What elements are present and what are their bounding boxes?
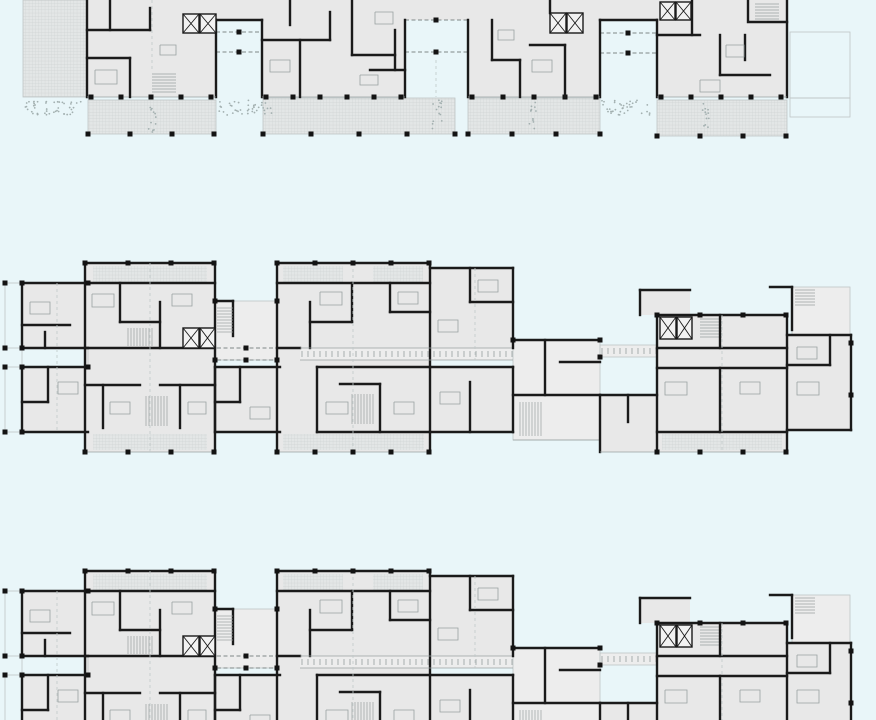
column — [83, 569, 88, 574]
column — [427, 450, 432, 455]
column — [126, 569, 131, 574]
gravel-dot — [618, 114, 620, 116]
column — [598, 663, 603, 668]
gravel-dot — [646, 104, 648, 106]
gravel-dot — [441, 100, 443, 102]
column — [389, 450, 394, 455]
gravel-dot — [440, 102, 442, 104]
gravel-dot — [607, 111, 609, 113]
room-fill — [600, 345, 657, 357]
column — [399, 95, 404, 100]
gravel-dot — [58, 101, 60, 103]
gravel-dot — [614, 109, 616, 111]
gravel-dot — [253, 106, 255, 108]
room-fill — [22, 591, 88, 656]
gravel-dot — [265, 102, 267, 104]
column — [698, 134, 703, 139]
column — [126, 261, 131, 266]
gravel-dot — [530, 109, 532, 111]
gravel-dot — [44, 112, 46, 114]
gravel-dot — [619, 111, 621, 113]
column — [86, 281, 91, 286]
gravel-dot — [262, 107, 264, 109]
gravel-dot — [229, 102, 231, 104]
room-fill — [277, 571, 430, 720]
column — [849, 393, 854, 398]
gravel-dot — [241, 113, 243, 115]
gravel-dot — [148, 128, 150, 130]
room-fill — [215, 301, 277, 360]
gravel-dot — [623, 105, 625, 107]
gravel-dot — [621, 108, 623, 110]
column — [405, 132, 410, 137]
gravel-dot — [264, 113, 266, 115]
column — [741, 134, 746, 139]
gravel-dot — [603, 101, 605, 103]
column — [275, 666, 280, 671]
gravel-dot — [254, 112, 256, 114]
column — [749, 95, 754, 100]
room-fill — [430, 367, 513, 432]
gravel-dot — [256, 110, 258, 112]
column — [3, 430, 8, 435]
gravel-dot — [535, 110, 537, 112]
gravel-dot — [80, 101, 82, 103]
gravel-dot — [704, 111, 706, 113]
gravel-dot — [610, 111, 612, 113]
hatched-paving — [263, 98, 455, 134]
gravel-dot — [271, 112, 273, 114]
gravel-dot — [46, 108, 48, 110]
column — [784, 621, 789, 626]
gravel-dot — [66, 114, 68, 116]
column — [213, 607, 218, 612]
hatched-paving — [93, 574, 207, 591]
column — [427, 569, 432, 574]
gravel-dot — [28, 101, 30, 103]
column — [784, 134, 789, 139]
gravel-dot — [534, 106, 536, 108]
gravel-dot — [247, 104, 249, 106]
gravel-dot — [702, 103, 704, 105]
column — [237, 50, 242, 55]
gravel-dot — [649, 114, 651, 116]
column — [501, 95, 506, 100]
column — [275, 569, 280, 574]
gravel-dot — [439, 114, 441, 116]
column — [741, 450, 746, 455]
column — [351, 261, 356, 266]
gravel-dot — [155, 123, 157, 125]
gravel-dot — [627, 110, 629, 112]
gravel-dot — [46, 114, 48, 116]
gravel-dot — [704, 124, 706, 126]
column — [20, 430, 25, 435]
gravel-dot — [26, 102, 28, 104]
column — [149, 95, 154, 100]
column — [698, 313, 703, 318]
gravel-dot — [601, 100, 603, 102]
column — [532, 95, 537, 100]
gravel-dot — [234, 101, 236, 103]
column — [598, 646, 603, 651]
gravel-dot — [706, 118, 708, 120]
column — [20, 673, 25, 678]
gravel-dot — [626, 106, 628, 108]
gravel-dot — [629, 104, 631, 106]
gravel-dot — [636, 99, 638, 101]
gravel-dot — [267, 108, 269, 110]
column — [511, 338, 516, 343]
gravel-dot — [254, 104, 256, 106]
column — [389, 261, 394, 266]
gravel-dot — [629, 106, 631, 108]
gravel-dot — [432, 120, 434, 122]
gravel-dot — [438, 106, 440, 108]
column — [655, 621, 660, 626]
column — [3, 281, 8, 286]
column — [784, 313, 789, 318]
column — [128, 132, 133, 137]
column — [309, 132, 314, 137]
gravel-dot — [632, 102, 634, 104]
gravel-dot — [533, 128, 535, 130]
room-fill — [600, 653, 657, 665]
gravel-dot — [270, 107, 272, 109]
room-fill — [787, 643, 851, 720]
column — [275, 450, 280, 455]
gravel-dot — [220, 106, 222, 108]
gravel-dot — [612, 110, 614, 112]
hatched-paving — [657, 100, 787, 136]
gravel-dot — [45, 101, 47, 103]
gravel-dot — [150, 122, 152, 124]
column — [261, 132, 266, 137]
gravel-dot — [707, 126, 709, 128]
column — [86, 132, 91, 137]
gravel-dot — [34, 107, 36, 109]
gravel-dot — [234, 109, 236, 111]
column — [466, 132, 471, 137]
gravel-dot — [151, 131, 153, 133]
column — [179, 95, 184, 100]
gravel-dot — [631, 106, 633, 108]
column — [779, 95, 784, 100]
room-fill — [640, 290, 690, 315]
column — [626, 31, 631, 36]
room-fill — [792, 287, 850, 335]
gravel-dot — [219, 101, 221, 103]
gravel-dot — [646, 111, 648, 113]
column — [3, 365, 8, 370]
gravel-dot — [251, 111, 253, 113]
gravel-dot — [529, 123, 531, 125]
room-fill — [215, 675, 280, 720]
gravel-dot — [441, 120, 443, 122]
column — [626, 51, 631, 56]
room-fill — [640, 598, 690, 623]
gravel-dot — [432, 128, 434, 130]
gravel-dot — [534, 102, 536, 104]
column — [212, 569, 217, 574]
gravel-dot — [261, 102, 263, 104]
column — [357, 132, 362, 137]
column — [212, 450, 217, 455]
column — [741, 621, 746, 626]
room-fill — [792, 595, 850, 643]
ground-floor-plan — [23, 0, 850, 139]
gravel-dot — [230, 104, 232, 106]
gravel-dot — [63, 113, 65, 115]
gravel-dot — [57, 107, 59, 109]
column — [594, 95, 599, 100]
gravel-dot — [33, 103, 35, 105]
column — [849, 341, 854, 346]
room-fill — [430, 675, 513, 720]
room-fill — [405, 20, 468, 97]
column — [741, 313, 746, 318]
gravel-dot — [609, 108, 611, 110]
column — [689, 95, 694, 100]
gravel-dot — [440, 106, 442, 108]
column — [318, 95, 323, 100]
column — [213, 358, 218, 363]
gravel-dot — [149, 107, 151, 109]
hatched-paving — [373, 574, 423, 591]
column — [470, 95, 475, 100]
column — [598, 338, 603, 343]
column — [784, 450, 789, 455]
floor-plan-canvas — [0, 0, 876, 720]
column — [275, 299, 280, 304]
column — [86, 365, 91, 370]
column — [291, 95, 296, 100]
gravel-dot — [151, 108, 153, 110]
column — [264, 95, 269, 100]
gravel-dot — [70, 103, 72, 105]
column — [434, 18, 439, 23]
gravel-dot — [606, 108, 608, 110]
column — [244, 654, 249, 659]
gravel-dot — [70, 101, 72, 103]
gravel-dot — [37, 113, 39, 115]
gravel-dot — [707, 112, 709, 114]
gravel-dot — [48, 113, 50, 115]
hatched-paving — [283, 266, 343, 283]
column — [389, 569, 394, 574]
gravel-dot — [635, 101, 637, 103]
column — [698, 621, 703, 626]
column — [345, 95, 350, 100]
column — [212, 132, 217, 137]
column — [20, 346, 25, 351]
column — [511, 646, 516, 651]
column — [169, 261, 174, 266]
gravel-dot — [31, 111, 33, 113]
gravel-dot — [71, 109, 73, 111]
column — [655, 134, 660, 139]
column — [213, 666, 218, 671]
column — [719, 95, 724, 100]
gravel-dot — [705, 113, 707, 115]
gravel-dot — [247, 113, 249, 115]
room-fill — [215, 609, 277, 668]
column — [212, 261, 217, 266]
gravel-dot — [33, 101, 35, 103]
gravel-dot — [62, 101, 64, 103]
column — [372, 95, 377, 100]
column — [20, 281, 25, 286]
room-fill — [85, 263, 215, 452]
column — [20, 589, 25, 594]
column — [3, 673, 8, 678]
gravel-dot — [614, 102, 616, 104]
gravel-dot — [63, 103, 65, 105]
room-fill — [22, 367, 88, 432]
column — [3, 654, 8, 659]
gravel-dot — [248, 99, 250, 101]
column — [598, 132, 603, 137]
gravel-dot — [37, 101, 39, 103]
column — [244, 346, 249, 351]
gravel-dot — [226, 114, 228, 116]
hatched-paving — [88, 100, 216, 134]
column — [89, 95, 94, 100]
room-fill — [22, 283, 88, 348]
column — [351, 569, 356, 574]
gravel-dot — [26, 106, 28, 108]
gravel-dot — [702, 109, 704, 111]
gravel-dot — [76, 102, 78, 104]
column — [351, 450, 356, 455]
column — [427, 261, 432, 266]
room-fill — [430, 576, 513, 656]
column — [659, 95, 664, 100]
column — [169, 569, 174, 574]
column — [244, 358, 249, 363]
column — [213, 299, 218, 304]
gravel-dot — [623, 112, 625, 114]
hatched-paving — [373, 266, 423, 283]
column — [849, 701, 854, 706]
gravel-dot — [155, 116, 157, 118]
column — [698, 450, 703, 455]
gravel-dot — [531, 105, 533, 107]
gravel-dot — [629, 100, 631, 102]
gravel-dot — [69, 107, 71, 109]
column — [86, 673, 91, 678]
column — [209, 95, 214, 100]
column — [275, 358, 280, 363]
gravel-dot — [614, 100, 616, 102]
room-fill — [513, 648, 600, 720]
gravel-dot — [432, 103, 434, 105]
gravel-dot — [33, 105, 35, 107]
gravel-dot — [69, 113, 71, 115]
gravel-dot — [223, 111, 225, 113]
column — [554, 132, 559, 137]
gravel-dot — [237, 111, 239, 113]
gravel-dot — [247, 110, 249, 112]
column — [237, 30, 242, 35]
gravel-dot — [240, 109, 242, 111]
gravel-dot — [238, 102, 240, 104]
column — [510, 132, 515, 137]
gravel-dot — [153, 111, 155, 113]
column — [169, 450, 174, 455]
column — [119, 95, 124, 100]
column — [126, 450, 131, 455]
column — [3, 589, 8, 594]
gravel-dot — [252, 108, 254, 110]
column — [86, 589, 91, 594]
gravel-dot — [532, 119, 534, 121]
column — [83, 261, 88, 266]
gravel-dot — [432, 123, 434, 125]
column — [313, 261, 318, 266]
column — [275, 261, 280, 266]
gravel-dot — [72, 111, 74, 113]
column — [20, 654, 25, 659]
column — [655, 450, 660, 455]
gravel-dot — [436, 109, 438, 111]
gravel-dot — [232, 112, 234, 114]
column — [20, 365, 25, 370]
column — [83, 450, 88, 455]
column — [434, 50, 439, 55]
gravel-dot — [56, 110, 58, 112]
gravel-dot — [602, 104, 604, 106]
gravel-dot — [707, 109, 709, 111]
gravel-dot — [57, 101, 59, 103]
column — [3, 346, 8, 351]
gravel-dot — [261, 104, 263, 106]
column — [598, 355, 603, 360]
gravel-dot — [53, 101, 55, 103]
room-fill — [215, 367, 280, 432]
column — [313, 450, 318, 455]
gravel-dot — [263, 110, 265, 112]
gravel-dot — [58, 111, 60, 113]
gravel-dot — [27, 109, 29, 111]
gravel-dot — [258, 106, 260, 108]
column — [275, 607, 280, 612]
architectural-drawing-page — [0, 0, 876, 720]
column — [453, 132, 458, 137]
hatched-paving — [23, 0, 87, 97]
gravel-dot — [641, 112, 643, 114]
gravel-dot — [154, 113, 156, 115]
room-fill — [430, 268, 513, 348]
hatched-paving — [93, 434, 207, 450]
gravel-dot — [32, 113, 34, 115]
gravel-dot — [532, 121, 534, 123]
gravel-dot — [649, 112, 651, 114]
gravel-dot — [619, 103, 621, 105]
gravel-dot — [46, 110, 48, 112]
gravel-dot — [704, 108, 706, 110]
hatched-paving — [283, 434, 424, 450]
column — [244, 666, 249, 671]
column — [313, 569, 318, 574]
column — [655, 313, 660, 318]
gravel-dot — [218, 110, 220, 112]
gravel-dot — [708, 117, 710, 119]
hatched-paving — [93, 266, 207, 283]
column — [849, 649, 854, 654]
gravel-dot — [438, 99, 440, 101]
gravel-dot — [610, 112, 612, 114]
